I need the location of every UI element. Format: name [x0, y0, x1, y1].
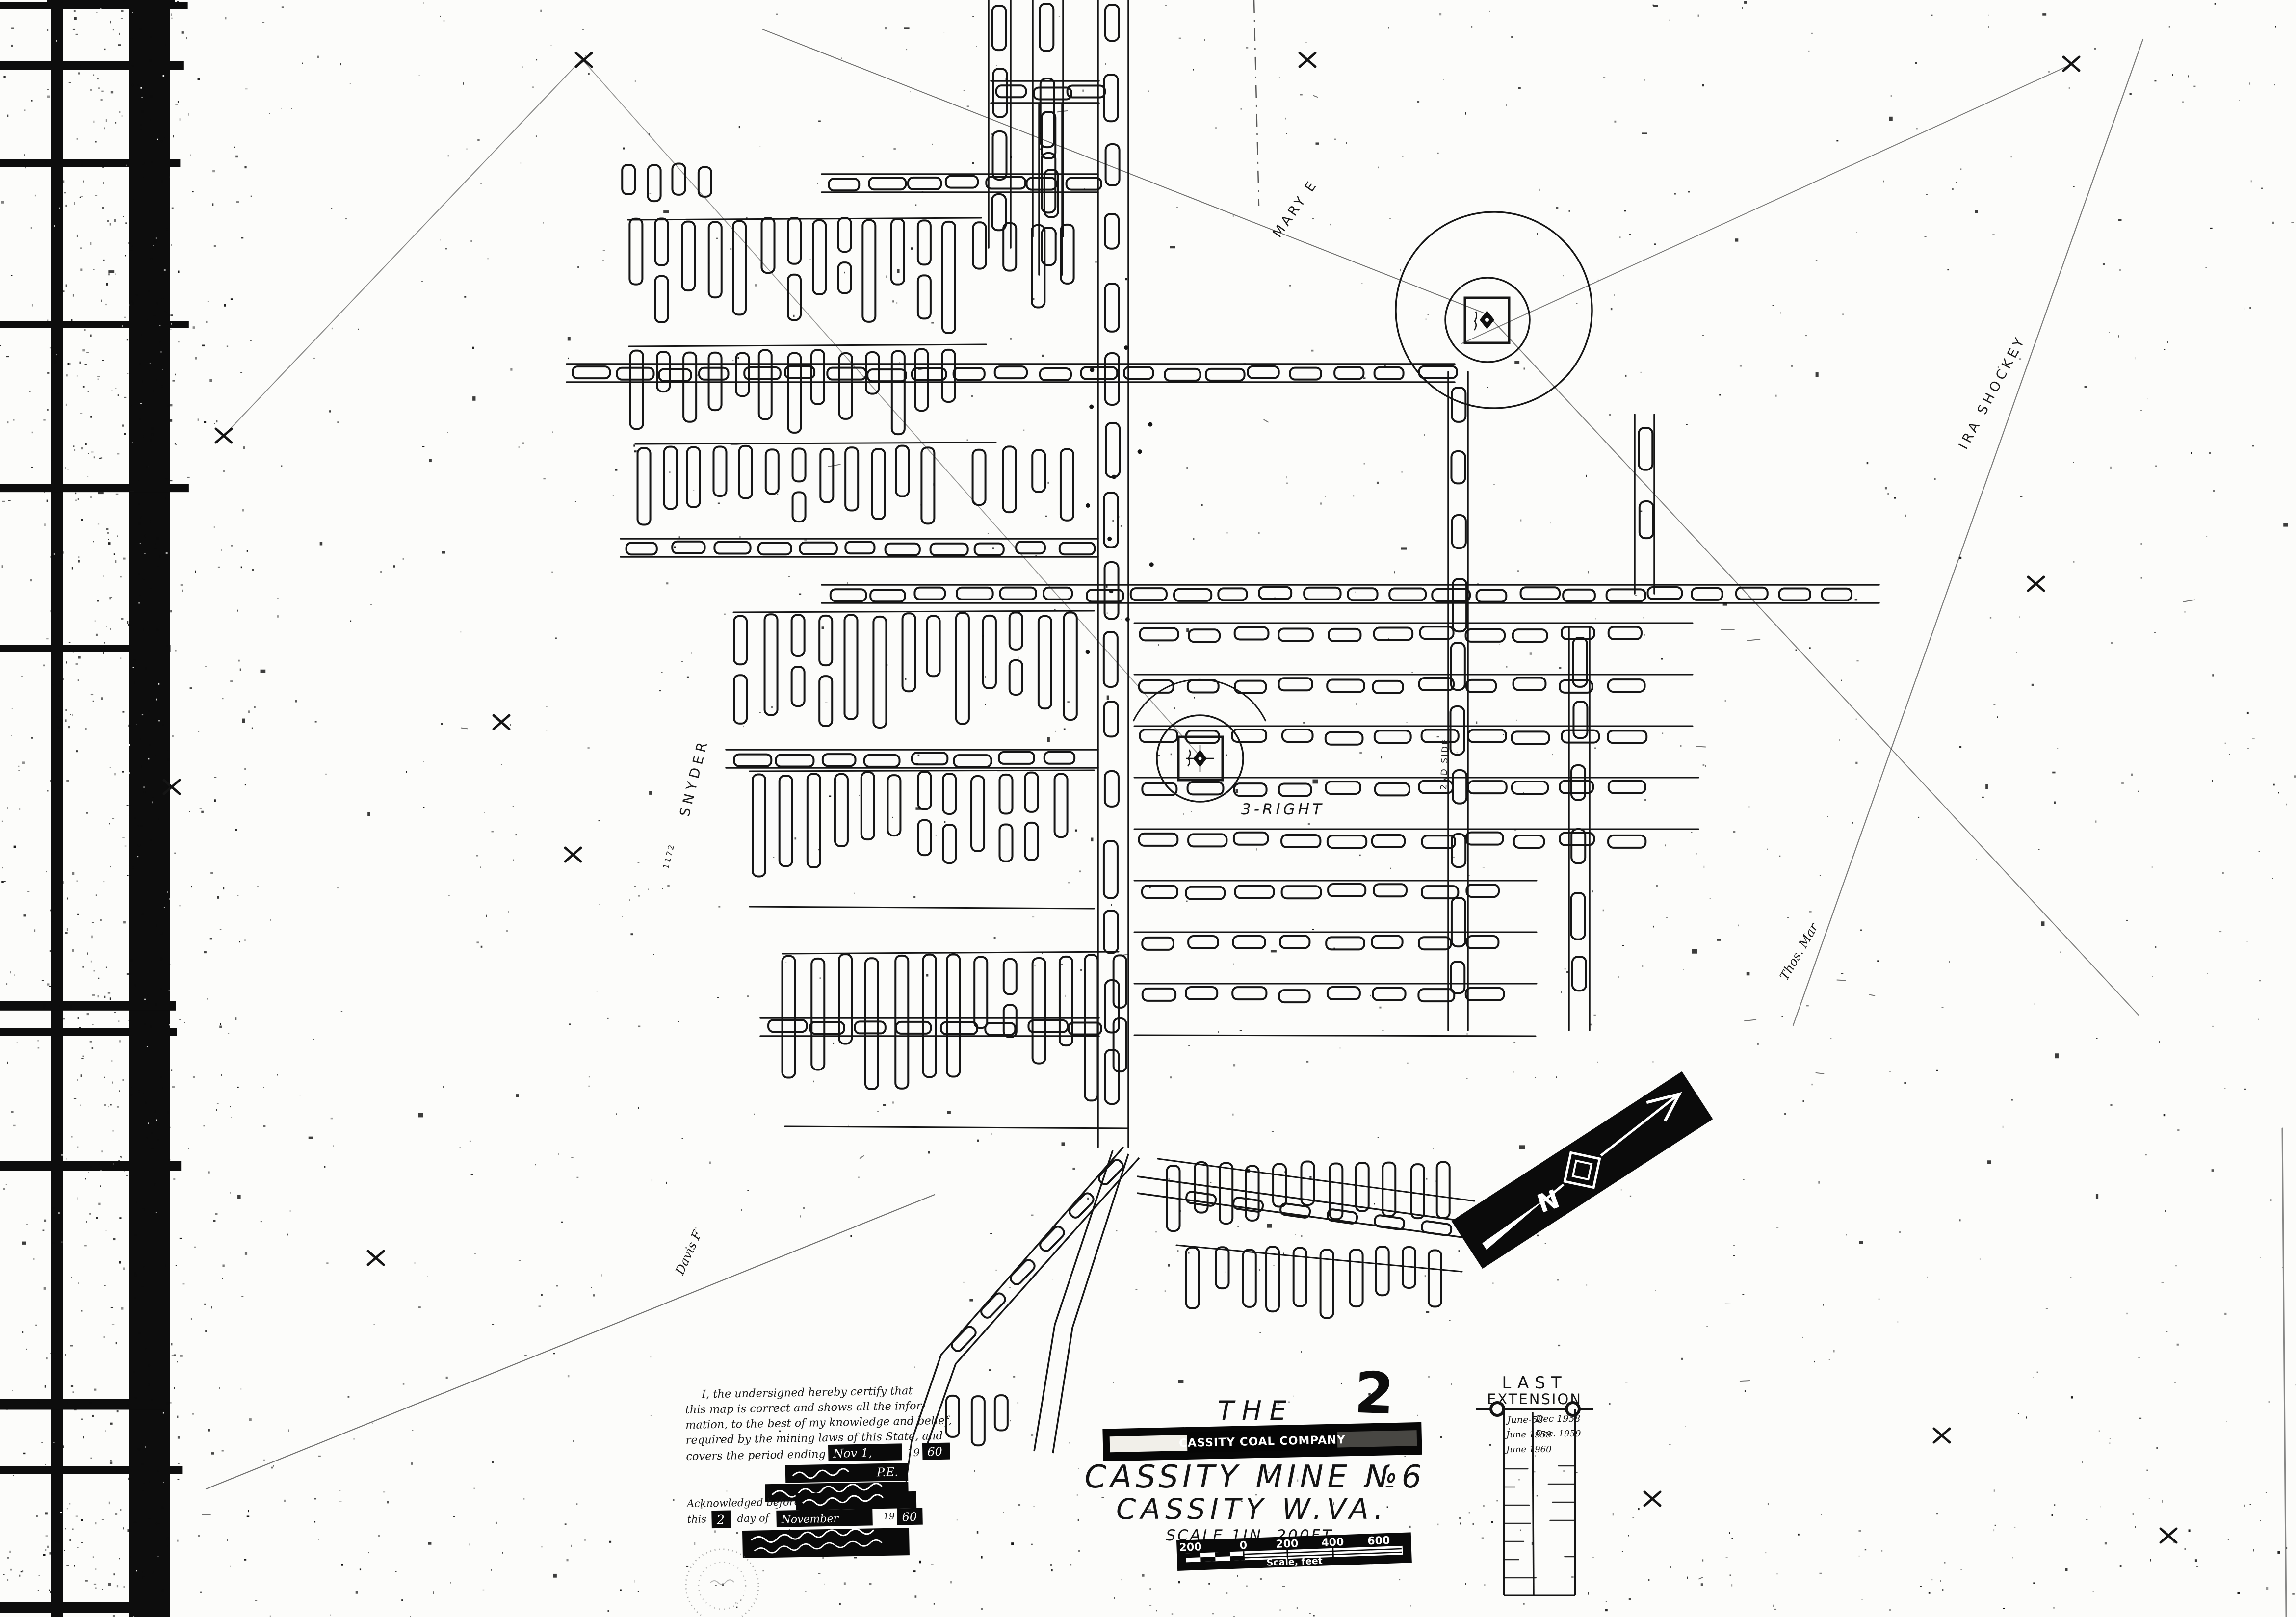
table-c1-r3: June 1960 — [1504, 1444, 1552, 1455]
notary-stamp — [686, 1549, 758, 1617]
map-labels: IRA SHOCKEY SNYDER 1172 Davis F Thos. Ma… — [661, 177, 2029, 1277]
cert-date-script: Nov 1, — [833, 1446, 872, 1460]
scale-checker — [1186, 1553, 1200, 1558]
entry-label-2nd-side: 2ND SIDE — [1439, 738, 1451, 790]
title-mine-name: CASSITY MINE №6 — [1085, 1459, 1426, 1495]
scale-tick-600: 600 — [1367, 1535, 1390, 1548]
cert-yr2-prefix: 19 — [883, 1512, 894, 1522]
table-c2-r2: Dec. 1959 — [1535, 1429, 1581, 1439]
owner-label-snyder: SNYDER — [677, 737, 711, 818]
extension-table: LAST EXTENSION June-58 Dec 1958 June 195… — [1476, 1373, 1593, 1595]
owner-label-thos-mar: Thos. Mar — [1777, 920, 1822, 983]
stamp-outer-ring — [686, 1549, 758, 1617]
cert-line-3: mation, to the best of my knowledge and … — [685, 1414, 952, 1432]
scale-caption: Scale, feet — [1266, 1556, 1323, 1568]
entry-label-3-right: 3-RIGHT — [1241, 801, 1325, 818]
owner-label-snyder-no: 1172 — [661, 842, 676, 870]
cert-month: November — [781, 1513, 839, 1526]
cert-day-num: 2 — [716, 1513, 725, 1528]
owner-label-davis: Davis F — [673, 1227, 705, 1277]
cert-line-4: required by the mining laws of this Stat… — [686, 1430, 943, 1447]
sheet-number: 2 — [1354, 1360, 1395, 1428]
cert-year-suffix: 60 — [927, 1445, 942, 1459]
cert-line-2: this map is correct and shows all the in… — [685, 1400, 925, 1417]
table-c2-r1: Dec 1958 — [1535, 1413, 1581, 1424]
cert-this: this — [687, 1513, 706, 1525]
scale-checker — [1200, 1557, 1215, 1562]
certification-block: I, the undersigned hereby certify that t… — [684, 1384, 954, 1559]
scratch-lines — [206, 0, 2143, 1489]
cert-year-prefix: 19 — [907, 1447, 920, 1459]
cert-line-1: I, the undersigned hereby certify that — [701, 1384, 913, 1401]
label-mary-e: MARY E — [1270, 177, 1321, 240]
scale-tick-0: 0 — [1239, 1539, 1247, 1552]
cert-line-5: covers the period ending — [686, 1448, 826, 1463]
scale-checker — [1230, 1556, 1244, 1561]
table-title-1: LAST — [1502, 1373, 1567, 1393]
mine-map-canvas: N 2 THE CASSITY COAL COMPANY CASSITY MIN… — [0, 0, 2296, 1617]
well-symbol-dot — [1485, 318, 1489, 322]
scale-div — [1244, 1551, 1244, 1560]
cert-pe: P.E. — [876, 1465, 899, 1479]
scale-tick-200r: 200 — [1276, 1538, 1299, 1551]
well-note-squiggle — [1474, 312, 1477, 330]
table-pin-left — [1491, 1403, 1504, 1415]
well-symbol-dot — [1199, 757, 1202, 760]
table-empty-row-ticks — [1504, 1466, 1575, 1578]
scale-div — [1333, 1548, 1333, 1557]
title-the: THE — [1218, 1395, 1294, 1426]
north-arrow: N — [1452, 1071, 1713, 1269]
company-banner: CASSITY COAL COMPANY — [1102, 1422, 1422, 1461]
scale-tick-200l: 200 — [1179, 1541, 1202, 1554]
title-location: CASSITY W.VA. — [1116, 1492, 1388, 1526]
cert-yr2: 60 — [902, 1510, 917, 1524]
scanned-mine-map-page: N 2 THE CASSITY COAL COMPANY CASSITY MIN… — [0, 0, 2296, 1617]
scale-tick-400: 400 — [1321, 1536, 1344, 1549]
scan-noise-speckles — [0, 1, 2296, 1617]
film-edge-artifact — [0, 0, 189, 1617]
cert-day-of: day of — [737, 1512, 771, 1524]
scale-checker — [1215, 1552, 1230, 1557]
